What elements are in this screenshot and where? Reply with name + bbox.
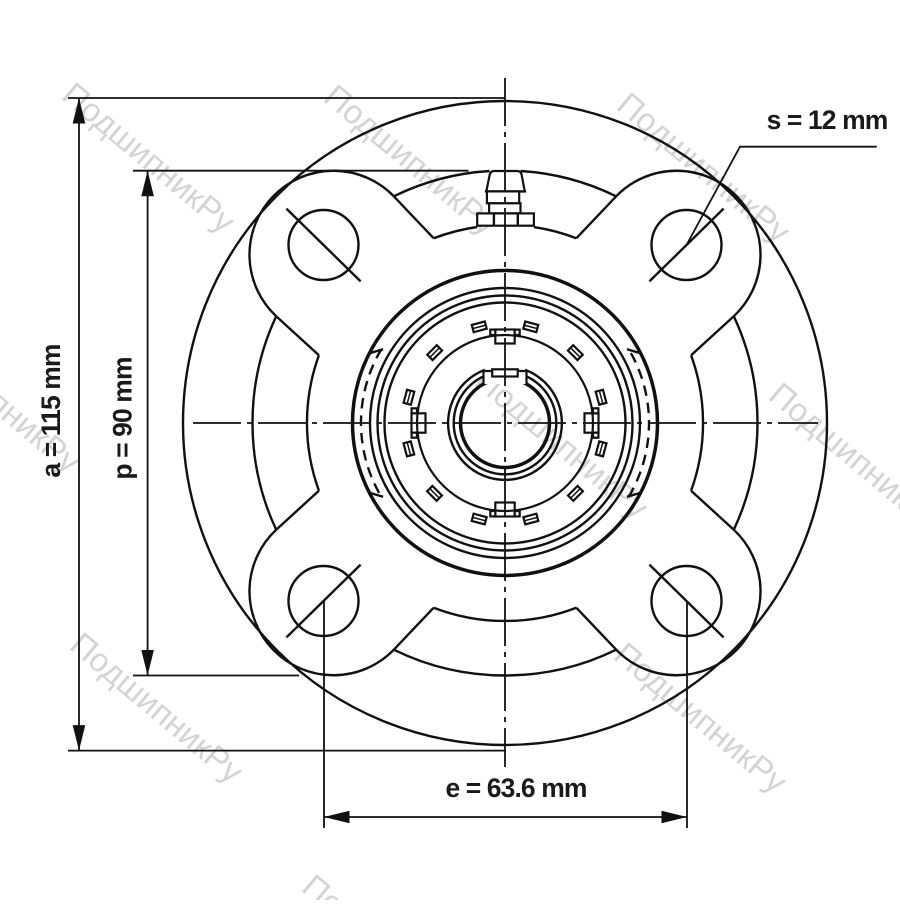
svg-text:a = 115 mm: a = 115 mm	[36, 344, 66, 477]
svg-text:s = 12 mm: s = 12 mm	[767, 105, 888, 135]
svg-text:p = 90 mm: p = 90 mm	[108, 357, 138, 479]
svg-text:e = 63.6 mm: e = 63.6 mm	[445, 773, 586, 803]
